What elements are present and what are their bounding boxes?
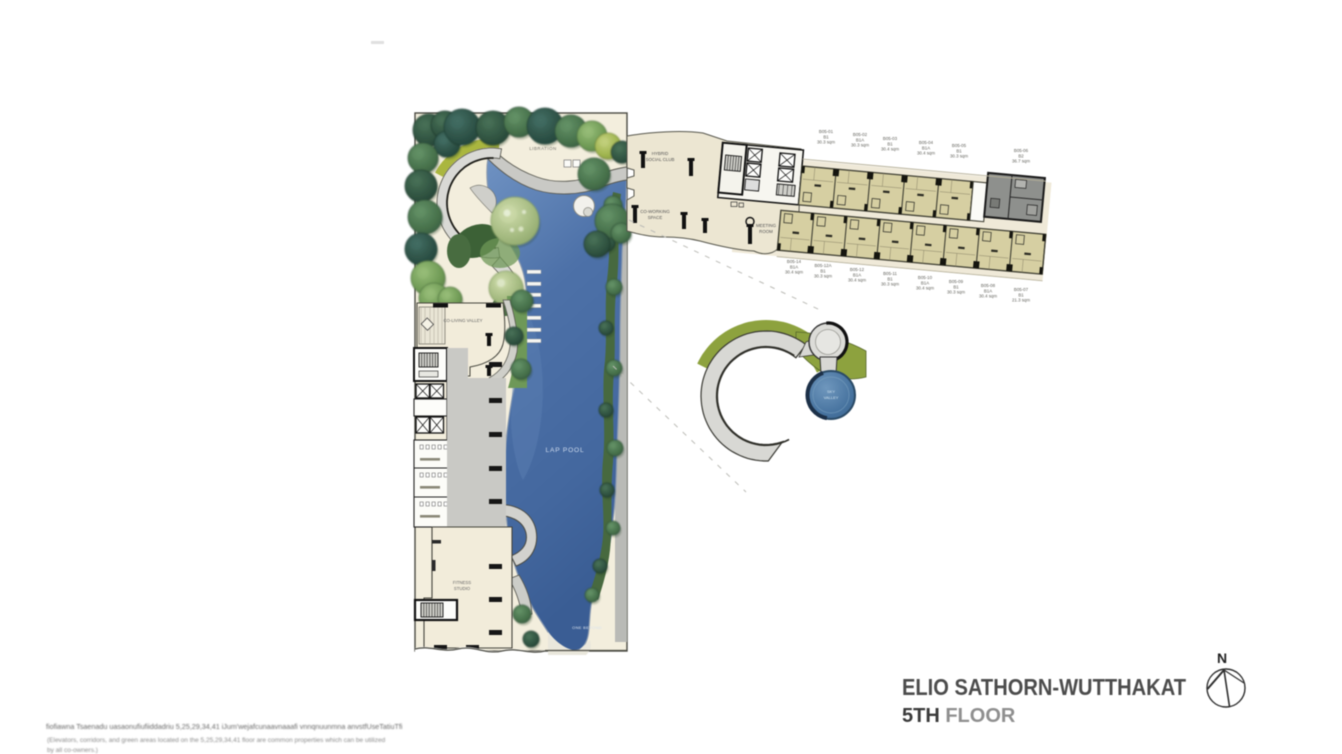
svg-text:B1: B1 bbox=[956, 148, 962, 153]
svg-text:30.3 sqm: 30.3 sqm bbox=[851, 143, 869, 148]
svg-text:B1A: B1A bbox=[790, 264, 798, 269]
svg-text:36.7 sqm: 36.7 sqm bbox=[1012, 159, 1030, 164]
svg-text:CO-WORKING: CO-WORKING bbox=[640, 209, 670, 214]
svg-text:30.4 sqm: 30.4 sqm bbox=[881, 147, 899, 152]
svg-text:21.3 sqm: 21.3 sqm bbox=[1012, 298, 1030, 303]
svg-text:B1: B1 bbox=[953, 284, 959, 289]
svg-text:30.4 sqm: 30.4 sqm bbox=[979, 294, 997, 299]
svg-text:B05-07: B05-07 bbox=[1014, 287, 1029, 292]
svg-text:B05-06: B05-06 bbox=[1014, 148, 1029, 153]
svg-text:by all co-owners.): by all co-owners.) bbox=[47, 747, 98, 754]
svg-text:B1A: B1A bbox=[921, 280, 929, 285]
svg-text:VALLEY: VALLEY bbox=[824, 395, 839, 400]
svg-text:B2: B2 bbox=[1018, 153, 1024, 158]
svg-text:B05-09: B05-09 bbox=[949, 279, 964, 284]
svg-text:B05-05: B05-05 bbox=[952, 143, 967, 148]
svg-text:30.4 sqm: 30.4 sqm bbox=[848, 278, 866, 283]
svg-text:B05-04: B05-04 bbox=[919, 140, 934, 145]
svg-text:HYBRID: HYBRID bbox=[652, 151, 669, 156]
svg-text:ELIO SATHORN-WUTTHAKAT: ELIO SATHORN-WUTTHAKAT bbox=[902, 674, 1186, 700]
svg-text:B05-02: B05-02 bbox=[853, 132, 868, 137]
svg-text:B1A: B1A bbox=[853, 272, 861, 277]
svg-text:LIBRATION: LIBRATION bbox=[529, 146, 556, 151]
svg-text:B1: B1 bbox=[887, 276, 893, 281]
svg-text:30.3 sqm: 30.3 sqm bbox=[947, 290, 965, 295]
svg-text:FITNESS: FITNESS bbox=[453, 580, 471, 585]
svg-text:SPACE: SPACE bbox=[648, 215, 663, 220]
svg-text:ONE BEYOND: ONE BEYOND bbox=[572, 625, 602, 630]
svg-text:B05-12A: B05-12A bbox=[814, 263, 831, 268]
svg-text:B05-14: B05-14 bbox=[787, 259, 802, 264]
svg-text:STUDIO: STUDIO bbox=[454, 586, 471, 591]
svg-text:(Elevators, corridors, and gre: (Elevators, corridors, and green areas l… bbox=[47, 737, 386, 744]
svg-text:B05-03: B05-03 bbox=[883, 136, 898, 141]
svg-text:B05-12: B05-12 bbox=[850, 267, 865, 272]
svg-text:B05-08: B05-08 bbox=[981, 283, 996, 288]
svg-text:30.3 sqm: 30.3 sqm bbox=[950, 154, 968, 159]
svg-text:ROOM: ROOM bbox=[759, 229, 773, 234]
svg-text:B05-10: B05-10 bbox=[918, 275, 933, 280]
svg-text:B1A: B1A bbox=[856, 137, 864, 142]
svg-text:30.4 sqm: 30.4 sqm bbox=[917, 151, 935, 156]
svg-text:B1: B1 bbox=[820, 268, 826, 273]
svg-text:B1A: B1A bbox=[984, 288, 992, 293]
svg-text:LAP POOL: LAP POOL bbox=[546, 447, 585, 454]
svg-text:fiofiawna Tsaenadu uasaonufiuf: fiofiawna Tsaenadu uasaonufiufiiddadriu … bbox=[46, 722, 403, 731]
svg-text:30.3 sqm: 30.3 sqm bbox=[814, 274, 832, 279]
svg-text:B05-11: B05-11 bbox=[883, 271, 897, 276]
svg-text:5TH FLOOR: 5TH FLOOR bbox=[902, 705, 1016, 727]
svg-text:SOCIAL CLUB: SOCIAL CLUB bbox=[646, 157, 675, 162]
svg-text:B05-01: B05-01 bbox=[819, 129, 834, 134]
svg-text:30.3 sqm: 30.3 sqm bbox=[881, 282, 899, 287]
svg-text:B1: B1 bbox=[887, 141, 893, 146]
svg-text:30.4 sqm: 30.4 sqm bbox=[785, 270, 803, 275]
svg-text:30.4 sqm: 30.4 sqm bbox=[916, 286, 934, 291]
svg-text:30.3 sqm: 30.3 sqm bbox=[817, 140, 835, 145]
svg-text:CO-LIVING VALLEY: CO-LIVING VALLEY bbox=[443, 318, 482, 323]
svg-text:B1: B1 bbox=[1018, 292, 1024, 297]
svg-text:N: N bbox=[1217, 650, 1227, 666]
svg-text:B1: B1 bbox=[823, 134, 829, 139]
svg-text:B1A: B1A bbox=[922, 145, 930, 150]
svg-text:SKY: SKY bbox=[827, 389, 835, 394]
svg-text:MEETING: MEETING bbox=[756, 223, 777, 228]
